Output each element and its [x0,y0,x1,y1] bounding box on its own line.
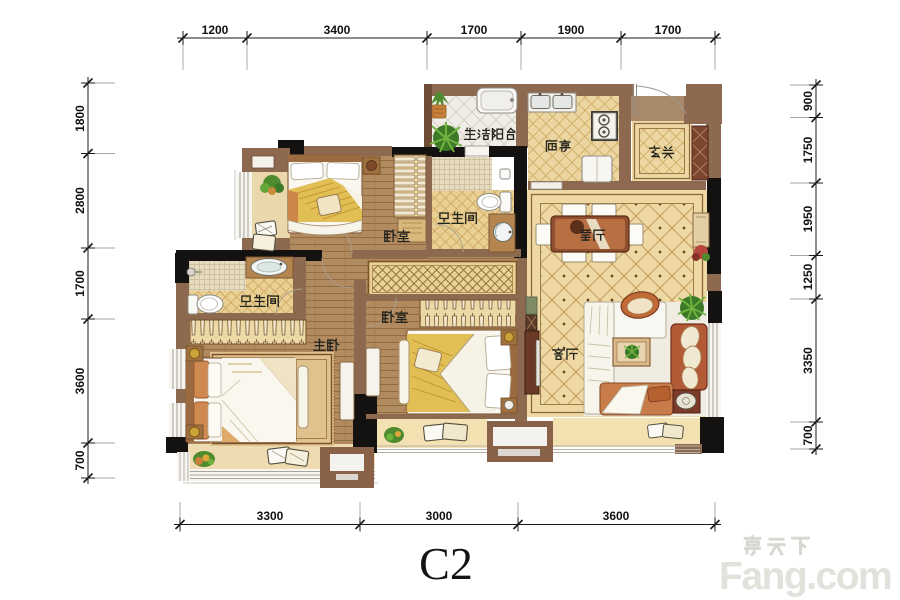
svg-text:3000: 3000 [426,509,453,523]
svg-text:1200: 1200 [202,23,229,37]
svg-text:700: 700 [801,425,815,445]
svg-text:1750: 1750 [801,136,815,163]
svg-text:Fang.com: Fang.com [719,555,891,598]
svg-text:2800: 2800 [73,187,87,214]
svg-text:3300: 3300 [257,509,284,523]
svg-text:1700: 1700 [73,270,87,297]
svg-text:3600: 3600 [603,509,630,523]
svg-text:1700: 1700 [461,23,488,37]
svg-text:3350: 3350 [801,347,815,374]
svg-text:1800: 1800 [73,105,87,132]
svg-text:1250: 1250 [801,263,815,290]
svg-text:3400: 3400 [324,23,351,37]
svg-text:1950: 1950 [801,205,815,232]
svg-text:1700: 1700 [655,23,682,37]
svg-text:1900: 1900 [558,23,585,37]
svg-text:900: 900 [801,91,815,111]
svg-text:700: 700 [73,450,87,470]
svg-text:C2: C2 [419,538,473,589]
svg-text:3600: 3600 [73,367,87,394]
